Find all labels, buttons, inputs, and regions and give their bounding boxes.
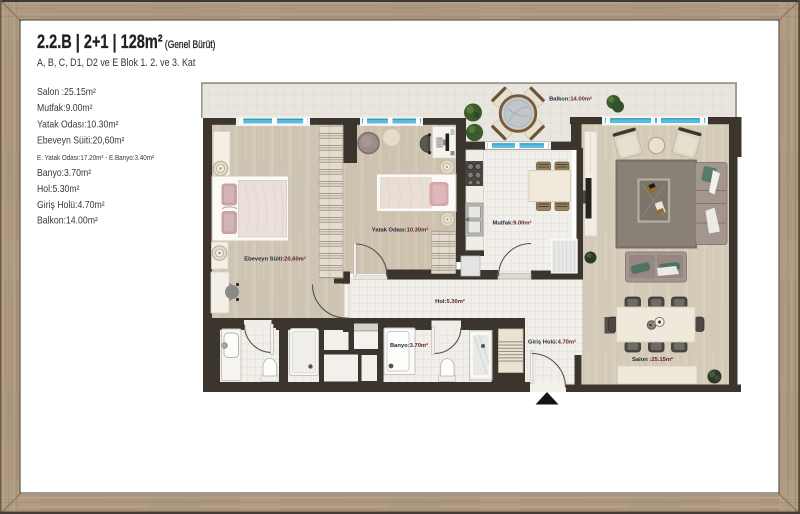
svg-text:Banyo:3.70m²: Banyo:3.70m² [390,342,428,349]
svg-text:Hol:5.30m²: Hol:5.30m² [435,298,465,305]
svg-text:Hol:5.30m²: Hol:5.30m² [37,183,79,194]
svg-text:Ebeveyn Süiti:20,60m²: Ebeveyn Süiti:20,60m² [37,135,124,146]
svg-text:Yatak Odası:10.30m²: Yatak Odası:10.30m² [372,227,428,234]
svg-text:Giriş Holü:4.70m²: Giriş Holü:4.70m² [37,199,105,210]
svg-text:Salon :25.15m²: Salon :25.15m² [632,356,673,363]
svg-text:Banyo:3.70m²: Banyo:3.70m² [37,168,91,179]
svg-text:E. Yatak Odası:17.20m² - E.Ban: E. Yatak Odası:17.20m² - E.Banyo:3.40m² [37,155,155,163]
svg-text:Mutfak:9.00m²: Mutfak:9.00m² [493,220,532,227]
svg-text:Balkon:14.00m²: Balkon:14.00m² [549,96,592,103]
svg-text:Balkon:14.00m²: Balkon:14.00m² [37,215,98,226]
svg-text:Salon :25.15m²: Salon :25.15m² [37,86,96,97]
svg-text:Mutfak:9.00m²: Mutfak:9.00m² [37,102,93,113]
svg-text:Ebeveyn Süiti:20,60m²: Ebeveyn Süiti:20,60m² [244,256,306,263]
svg-text:Giriş Holü:4.70m²: Giriş Holü:4.70m² [528,339,576,346]
svg-text:A, B, C, D1, D2 ve E Blok 1. 2: A, B, C, D1, D2 ve E Blok 1. 2. ve 3. Ka… [37,57,196,69]
svg-text:Yatak Odası:10.30m²: Yatak Odası:10.30m² [37,119,118,130]
